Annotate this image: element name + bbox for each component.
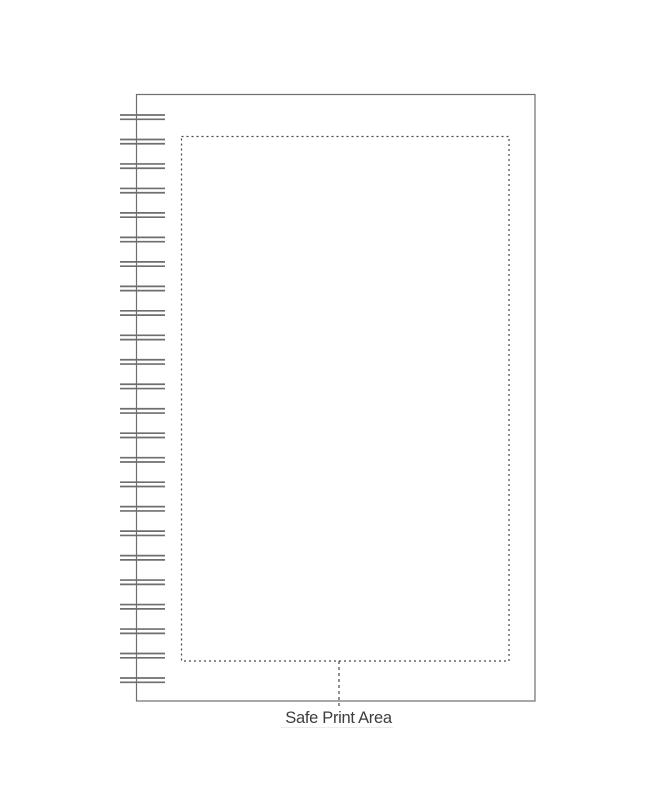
svg-text:Safe Print Area: Safe Print Area: [285, 709, 393, 727]
